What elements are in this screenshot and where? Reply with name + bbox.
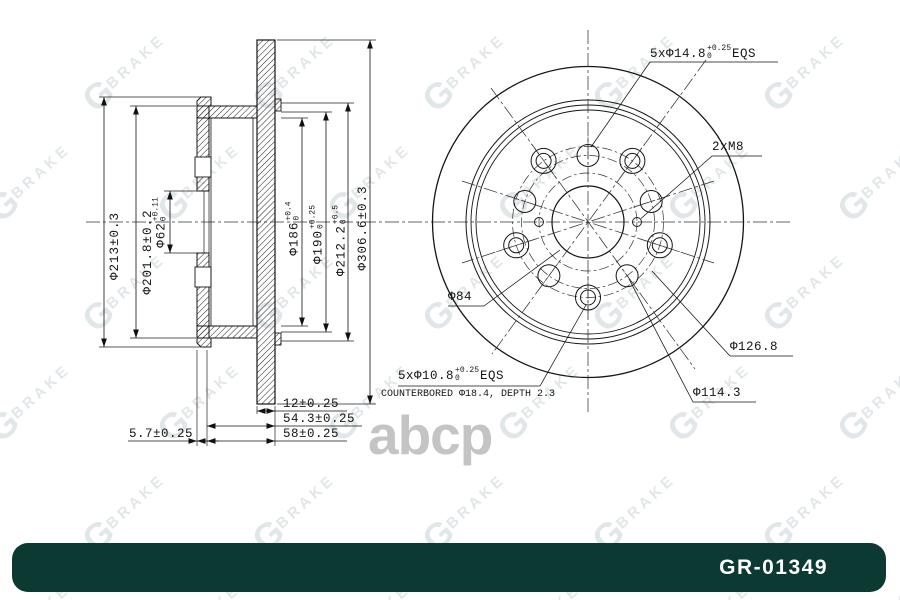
label-stud-holes: 5xΦ14.8 +0.250 EQS (650, 45, 756, 62)
label-m8-holes: 2xM8 (712, 140, 744, 154)
dim-drum-opening: Φ190 +0.250 (310, 204, 327, 264)
label-bolt-circle-inner: Φ114.3 (693, 386, 741, 400)
dim-disc-od: Φ306.6±0.3 (356, 185, 370, 270)
drawing-sheet: GBRAKEGBRAKEGBRAKEGBRAKEGBRAKEGBRAKEGBRA… (0, 0, 900, 600)
part-number-bar: GR-01349 (12, 543, 886, 592)
dim-drum-outer-step: Φ212.2 +0.50 (333, 204, 350, 276)
dim-inner-depth: 54.3±0.25 (283, 412, 355, 426)
label-bolt-circle-outer: Φ126.8 (730, 340, 778, 354)
dim-overall-depth: 58±0.25 (283, 427, 339, 441)
label-cbore-holes: 5xΦ10.8 +0.250 EQS (398, 367, 504, 384)
dim-hub-bore: Φ62 +0.110 (153, 196, 170, 248)
part-number: GR-01349 (719, 556, 828, 580)
label-cbore-note: COUNTERBORED Φ18.4, DEPTH 2.3 (381, 389, 555, 400)
dim-drum-inner: Φ186 +0.40 (286, 200, 303, 255)
label-center-bore: Φ84 (448, 290, 472, 304)
front-view (398, 30, 793, 415)
dim-drum-flange-od: Φ213±0.3 (108, 212, 122, 280)
dim-disc-thickness: 12±0.25 (283, 397, 339, 411)
dim-face-thickness: 5.7±0.25 (129, 427, 193, 441)
